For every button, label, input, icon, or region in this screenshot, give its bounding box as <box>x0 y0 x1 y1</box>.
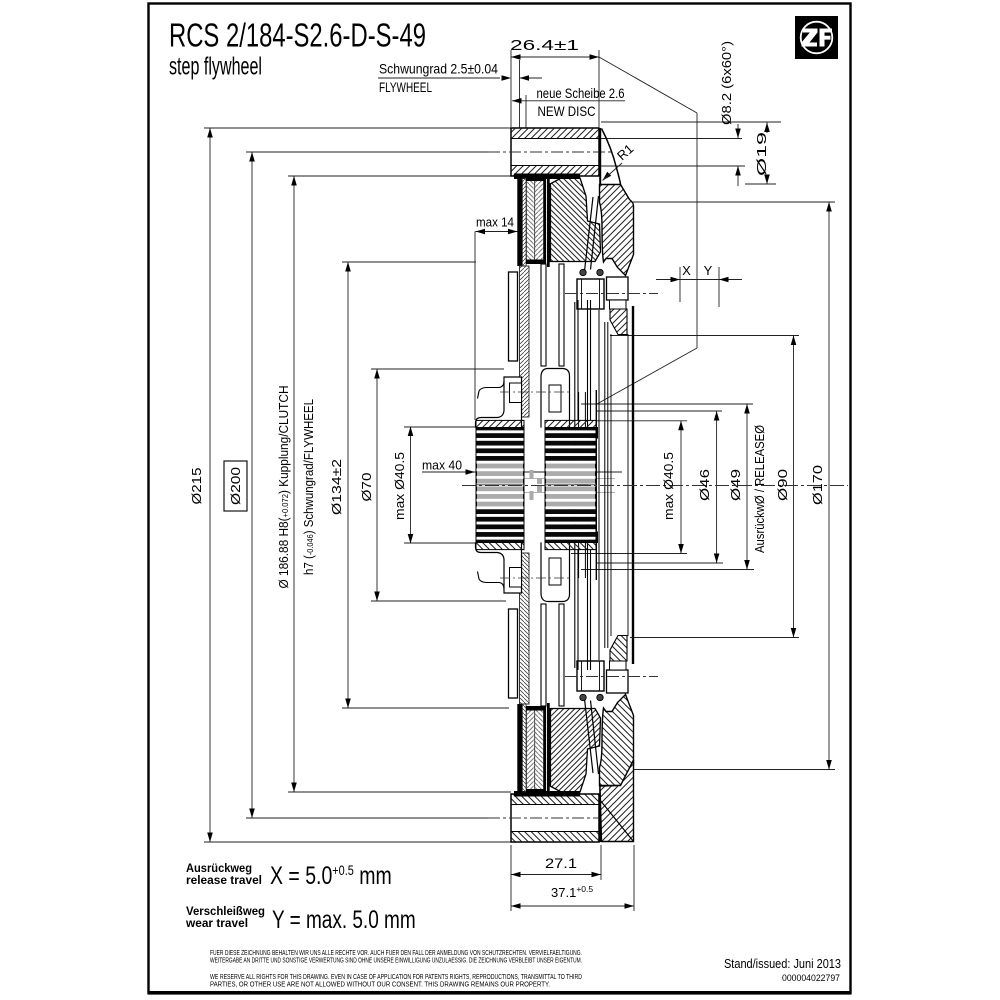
svg-text:Schwungrad 2.5±0.04: Schwungrad 2.5±0.04 <box>379 61 498 77</box>
svg-text:Ø 186.88 H8(+0.072) Kupplung/C: Ø 186.88 H8(+0.072) Kupplung/CLUTCH <box>277 386 291 589</box>
svg-text:WEITERGABE AN DRITTE UND SONST: WEITERGABE AN DRITTE UND SONSTIGE VERWER… <box>210 958 582 965</box>
svg-text:neue Scheibe 2.6: neue Scheibe 2.6 <box>537 85 625 101</box>
svg-text:max 40: max 40 <box>422 458 462 473</box>
svg-text:26.4±1: 26.4±1 <box>510 37 579 54</box>
svg-text:X: X <box>682 263 691 278</box>
svg-text:FUER DIESE ZEICHNUNG BEHALTEN: FUER DIESE ZEICHNUNG BEHALTEN WIR UNS AL… <box>210 950 582 957</box>
svg-text:FLYWHEEL: FLYWHEEL <box>379 79 432 95</box>
svg-text:RCS 2/184-S2.6-D-S-49: RCS 2/184-S2.6-D-S-49 <box>169 18 426 55</box>
svg-text:000004022797: 000004022797 <box>782 973 840 983</box>
svg-text:Ausrückweg: Ausrückweg <box>186 863 252 875</box>
svg-text:27.1: 27.1 <box>545 856 577 871</box>
svg-text:release travel: release travel <box>186 875 262 887</box>
svg-text:Ø200: Ø200 <box>228 467 243 505</box>
svg-text:Ø46: Ø46 <box>697 469 712 501</box>
svg-text:WE RESERVE ALL RIGHTS FOR THIS: WE RESERVE ALL RIGHTS FOR THIS DRAWING. … <box>210 974 582 981</box>
svg-text:step flywheel: step flywheel <box>169 53 262 81</box>
svg-text:Ø215: Ø215 <box>189 468 204 505</box>
svg-text:Ø49: Ø49 <box>728 469 743 501</box>
svg-text:AusrückwØ / RELEASEØ: AusrückwØ / RELEASEØ <box>753 425 767 553</box>
svg-text:Verschleißweg: Verschleißweg <box>186 906 265 918</box>
svg-text:max Ø40.5: max Ø40.5 <box>661 452 676 520</box>
svg-text:PARTIES, OR OTHER USE ARE NOT: PARTIES, OR OTHER USE ARE NOT ALLOWED WI… <box>210 982 550 989</box>
svg-text:Ø70: Ø70 <box>359 473 374 502</box>
svg-text:wear travel: wear travel <box>185 918 248 930</box>
svg-text:X = 5.0+0.5 mm: X = 5.0+0.5 mm <box>270 862 392 890</box>
svg-text:Stand/issued: Juni 2013: Stand/issued: Juni 2013 <box>724 956 841 971</box>
svg-text:NEW DISC: NEW DISC <box>538 103 596 119</box>
svg-text:Ø170: Ø170 <box>810 465 825 505</box>
svg-text:Ø90: Ø90 <box>775 469 790 501</box>
svg-text:Ø8.2 (6x60°): Ø8.2 (6x60°) <box>719 41 734 125</box>
svg-text:Ø19: Ø19 <box>754 132 769 176</box>
svg-text:Y: Y <box>704 263 713 278</box>
svg-text:max 14: max 14 <box>476 215 514 230</box>
svg-text:Y = max. 5.0 mm: Y = max. 5.0 mm <box>272 905 416 933</box>
svg-text:max Ø40.5: max Ø40.5 <box>392 452 407 520</box>
svg-text:Ø134±2: Ø134±2 <box>329 459 344 515</box>
